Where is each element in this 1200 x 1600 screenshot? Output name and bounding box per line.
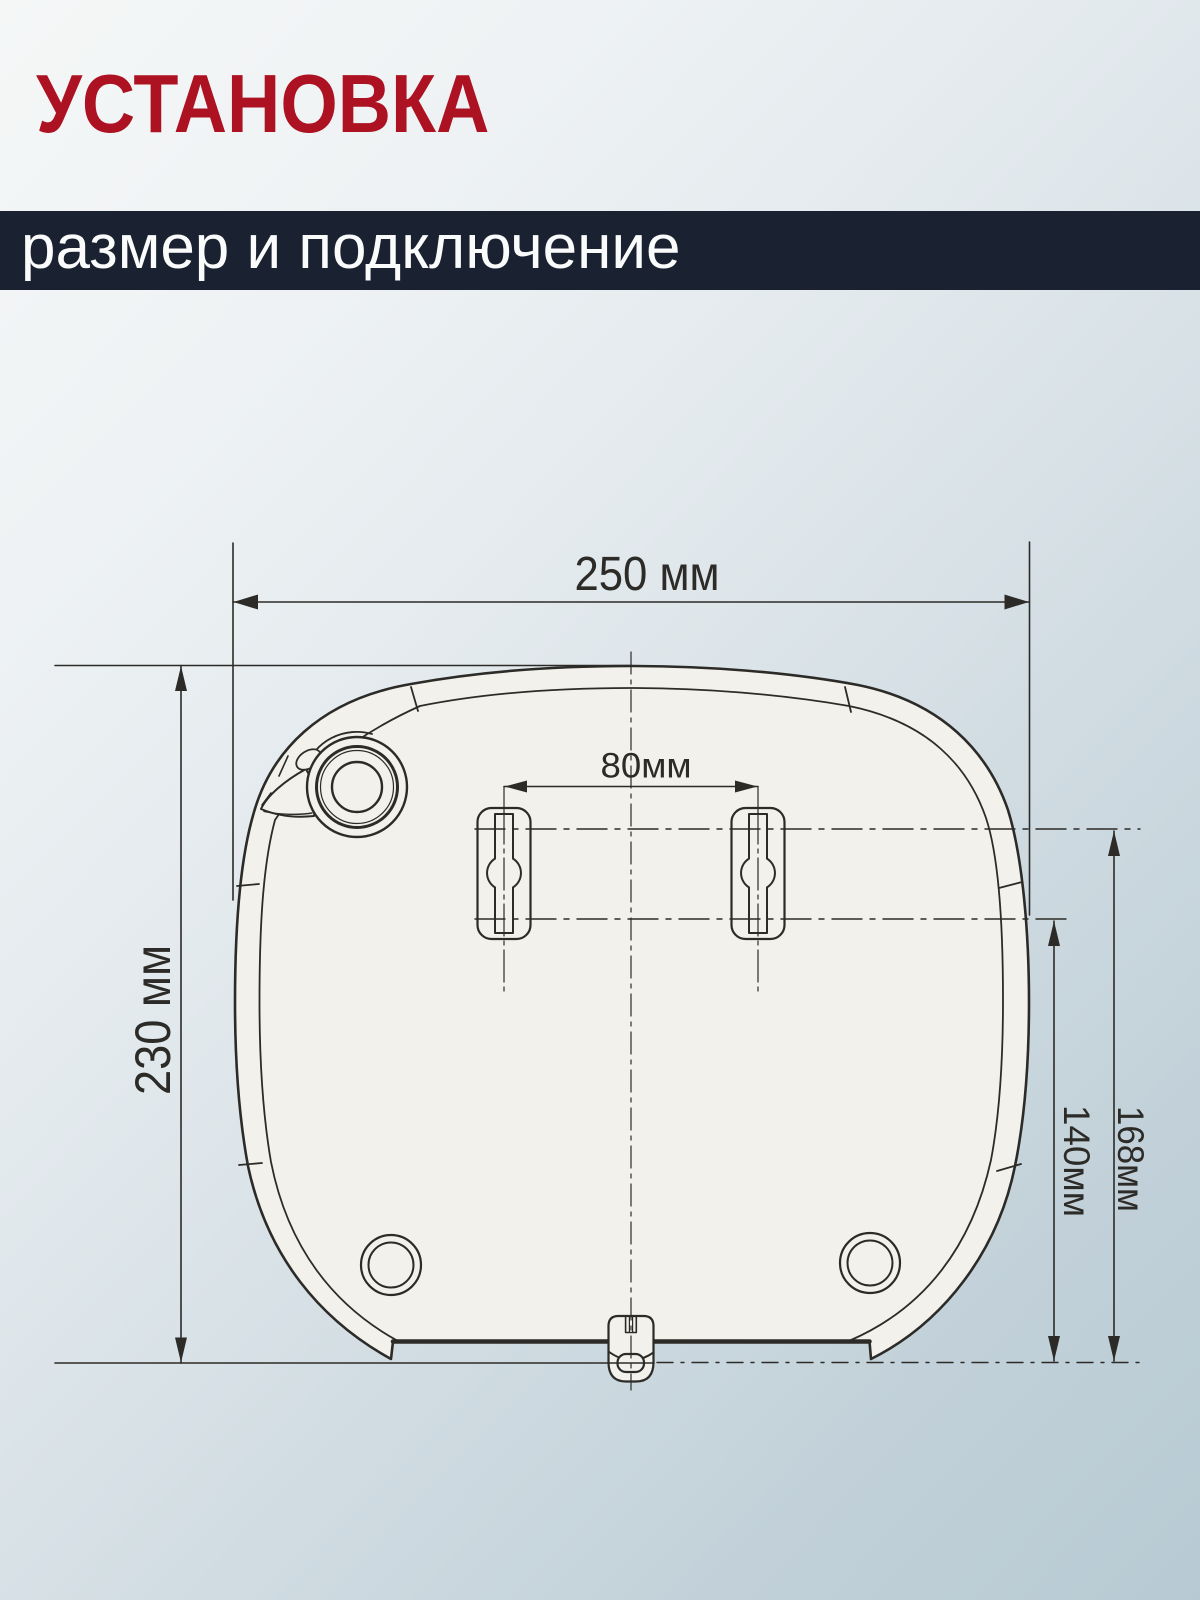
svg-text:80мм: 80мм (601, 747, 692, 786)
svg-text:168мм: 168мм (1110, 1106, 1151, 1212)
svg-text:140мм: 140мм (1056, 1105, 1097, 1217)
svg-text:230 мм: 230 мм (125, 945, 181, 1095)
svg-text:250 мм: 250 мм (575, 548, 720, 601)
